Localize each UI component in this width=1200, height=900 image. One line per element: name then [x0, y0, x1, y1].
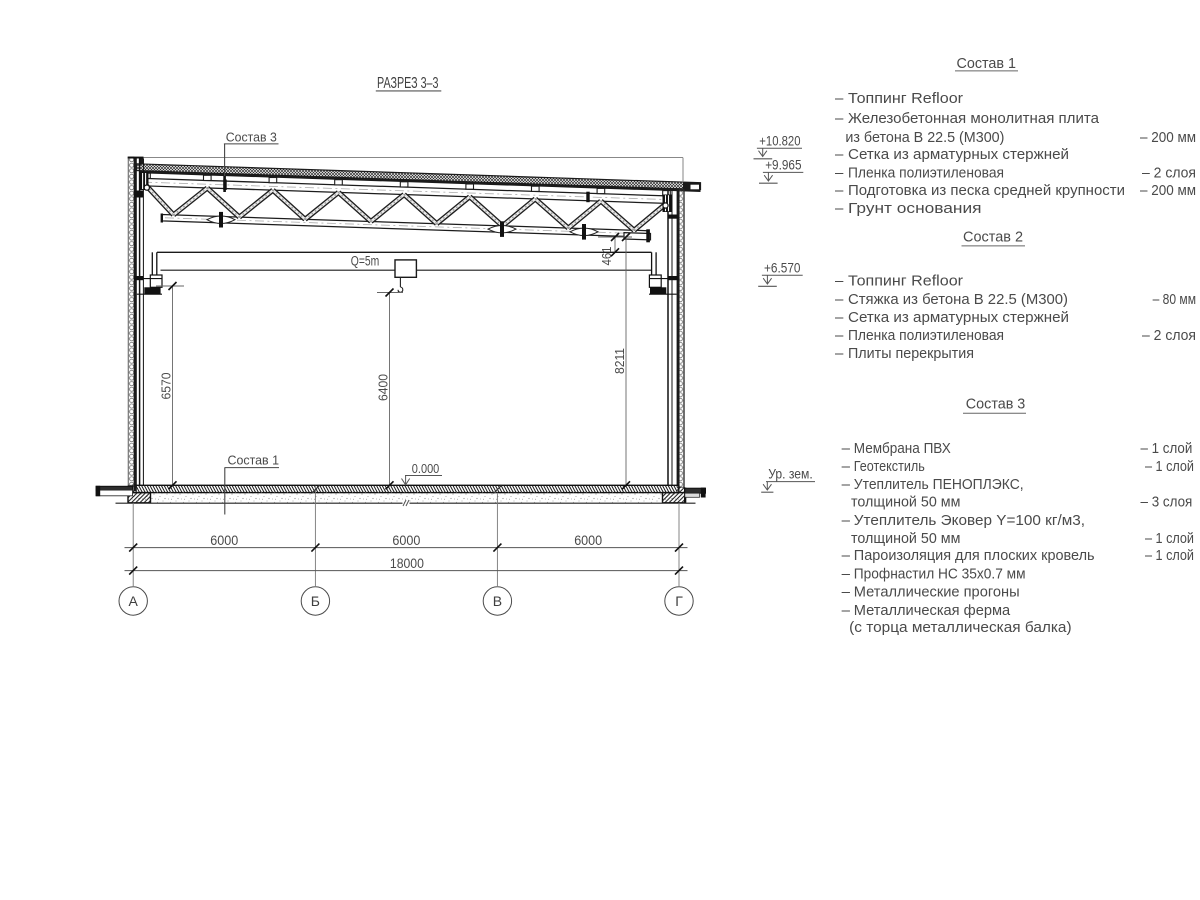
svg-text:– 1 слой: – 1 слой [1145, 547, 1194, 564]
svg-text:– 3 слоя: – 3 слоя [1141, 494, 1193, 511]
svg-text:–: – [835, 90, 844, 107]
svg-text:–: – [842, 476, 851, 493]
svg-text:–: – [842, 440, 851, 457]
svg-text:+10.820: +10.820 [759, 133, 800, 148]
svg-text:– 1 слой: – 1 слой [1141, 440, 1193, 457]
svg-text:– 1 слой: – 1 слой [1145, 530, 1194, 547]
svg-text:Плиты перекрытия: Плиты перекрытия [848, 345, 974, 362]
svg-text:– 80 мм: – 80 мм [1153, 291, 1196, 308]
svg-text:–: – [842, 584, 851, 601]
svg-text:– 2 слоя: – 2 слоя [1142, 165, 1196, 182]
svg-text:Состав 1: Состав 1 [228, 453, 280, 467]
svg-text:В: В [493, 593, 502, 609]
svg-text:6000: 6000 [392, 533, 420, 548]
svg-text:–: – [842, 512, 851, 529]
svg-text:Пленка полиэтиленовая: Пленка полиэтиленовая [848, 165, 1004, 182]
svg-text:–: – [835, 345, 844, 362]
svg-text:–: – [835, 110, 844, 127]
svg-text:Состав 3: Состав 3 [226, 130, 277, 144]
svg-text:0.000: 0.000 [412, 462, 440, 476]
svg-text:– 1 слой: – 1 слой [1145, 458, 1194, 475]
svg-text:толщиной 50 мм: толщиной 50 мм [851, 494, 960, 511]
svg-text:+9.965: +9.965 [765, 158, 801, 173]
svg-text:Геотекстиль: Геотекстиль [854, 458, 925, 475]
svg-text:Q=5m: Q=5m [351, 254, 380, 269]
svg-text:из бетона В 22.5 (М300): из бетона В 22.5 (М300) [845, 129, 1004, 146]
svg-text:8211: 8211 [612, 348, 627, 374]
svg-text:+6.570: +6.570 [764, 260, 801, 275]
svg-text:Состав 1: Состав 1 [957, 55, 1017, 72]
svg-text:6000: 6000 [574, 533, 602, 548]
svg-text:–: – [835, 309, 844, 326]
svg-text:– 2 слоя: – 2 слоя [1142, 327, 1196, 344]
svg-text:Г: Г [675, 593, 683, 609]
svg-text:–: – [835, 182, 844, 199]
svg-text:(с торца металлическая балка): (с торца металлическая балка) [849, 619, 1071, 636]
svg-text:–: – [842, 547, 851, 564]
svg-text:Сетка из арматурных стержней: Сетка из арматурных стержней [848, 146, 1069, 163]
svg-text:–: – [835, 327, 844, 344]
svg-text:461: 461 [600, 246, 614, 265]
svg-text:толщиной 50 мм: толщиной 50 мм [851, 530, 960, 547]
svg-text:Пленка полиэтиленовая: Пленка полиэтиленовая [848, 327, 1004, 344]
svg-text:Пароизоляция для плоских крове: Пароизоляция для плоских кровель [854, 547, 1095, 564]
svg-text:Ур. зем.: Ур. зем. [768, 467, 813, 482]
svg-text:Мембрана ПВХ: Мембрана ПВХ [854, 440, 951, 457]
svg-text:А: А [129, 593, 139, 609]
svg-text:–: – [835, 273, 844, 290]
svg-text:Топпинг Refloor: Топпинг Refloor [848, 273, 963, 290]
svg-text:Профнастил НС 35х0.7 мм: Профнастил НС 35х0.7 мм [854, 566, 1026, 583]
svg-text:Утеплитель ПЕНОПЛЭКС,: Утеплитель ПЕНОПЛЭКС, [854, 476, 1024, 493]
svg-text:–: – [835, 165, 844, 182]
svg-text:–: – [835, 291, 844, 308]
svg-text:–: – [835, 146, 844, 163]
svg-text:Состав 3: Состав 3 [966, 396, 1026, 413]
svg-text:Утеплитель Эковер Y=100 кг/м3,: Утеплитель Эковер Y=100 кг/м3, [854, 512, 1085, 529]
svg-text:– 200 мм: – 200 мм [1140, 129, 1196, 146]
svg-text:18000: 18000 [390, 556, 424, 571]
svg-text:– 200 мм: – 200 мм [1140, 182, 1196, 199]
svg-text:Грунт основания: Грунт основания [848, 200, 982, 217]
svg-text:Состав 2: Состав 2 [963, 229, 1023, 246]
svg-text:6570: 6570 [158, 373, 173, 400]
svg-text:Б: Б [311, 593, 320, 609]
svg-text:6400: 6400 [375, 374, 390, 401]
svg-text:Металлические прогоны: Металлические прогоны [854, 584, 1020, 601]
svg-text:Металлическая ферма: Металлическая ферма [854, 602, 1011, 619]
svg-text:–: – [842, 458, 851, 475]
svg-text:6000: 6000 [210, 533, 238, 548]
svg-text:–: – [835, 200, 844, 217]
svg-text:Стяжка из бетона В 22.5 (М300): Стяжка из бетона В 22.5 (М300) [848, 291, 1068, 308]
svg-text:–: – [842, 566, 851, 583]
svg-text:Топпинг Refloor: Топпинг Refloor [848, 90, 963, 107]
svg-text:–: – [842, 602, 851, 619]
svg-text:Железобетонная монолитная пли: Железобетонная монолитная плита [848, 110, 1100, 127]
svg-text:Подготовка из песка средней кр: Подготовка из песка средней крупности [848, 182, 1125, 199]
svg-text:РАЗРЕЗ 3–3: РАЗРЕЗ 3–3 [377, 75, 439, 92]
svg-text:Сетка из арматурных стержней: Сетка из арматурных стержней [848, 309, 1069, 326]
